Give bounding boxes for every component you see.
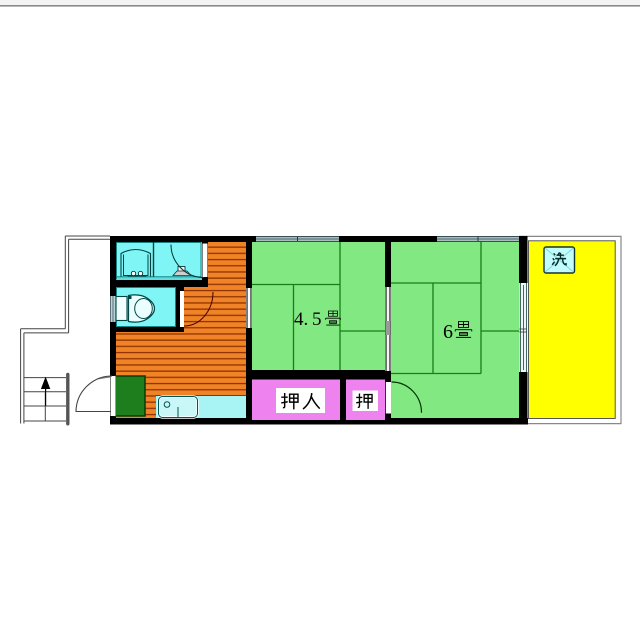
svg-text:4. 5: 4. 5	[294, 309, 322, 330]
svg-text:6: 6	[443, 321, 453, 343]
